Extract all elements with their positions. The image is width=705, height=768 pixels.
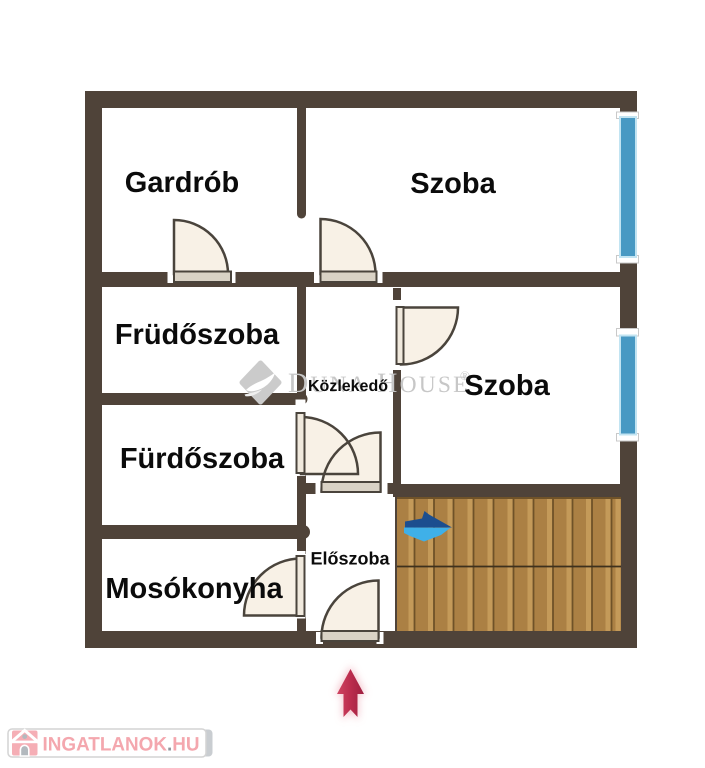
- svg-text:Szoba: Szoba: [410, 168, 496, 200]
- svg-text:Früdőszoba: Früdőszoba: [115, 319, 280, 351]
- svg-text:Szoba: Szoba: [464, 370, 550, 402]
- svg-text:INGATLANOK.HU: INGATLANOK.HU: [43, 734, 200, 756]
- svg-text:Közlekedő: Közlekedő: [308, 378, 388, 395]
- svg-text:Mosókonyha: Mosókonyha: [105, 573, 283, 605]
- svg-text:Fürdőszoba: Fürdőszoba: [120, 443, 285, 475]
- svg-text:Gardrób: Gardrób: [125, 167, 239, 199]
- svg-text:Előszoba: Előszoba: [310, 549, 390, 569]
